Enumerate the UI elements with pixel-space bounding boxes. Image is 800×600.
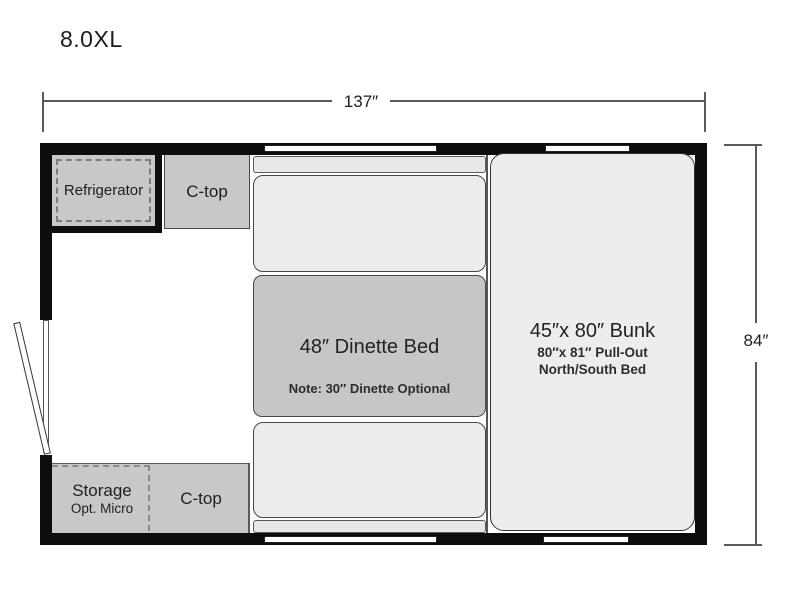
dinette-seat-bottom [253, 422, 486, 518]
dinette-bunk-divider [486, 155, 488, 533]
bunk-bed: 45″x 80″ Bunk 80″x 81″ Pull-Out North/So… [490, 153, 695, 531]
refrigerator-label: Refrigerator [64, 182, 143, 199]
window-bottom-left [264, 536, 437, 543]
width-dimension-tick-right [704, 92, 706, 132]
wall-left-upper [40, 143, 52, 320]
storage-counter-block: Storage Opt. Micro C-top [52, 463, 250, 533]
wall-right [695, 143, 707, 545]
width-dimension-line-right [390, 100, 705, 102]
dinette-backrest-top [253, 156, 486, 173]
width-dimension-label: 137″ [330, 92, 392, 112]
height-dimension-tick-top [724, 144, 762, 146]
counter-top-upper: C-top [164, 155, 250, 229]
storage-area: Storage Opt. Micro [52, 464, 152, 533]
height-dimension-tick-bottom [724, 544, 762, 546]
window-top-right [545, 145, 630, 152]
floorplan-canvas: 8.0XL 137″ 84″ Refrigerator C-top 48″ [0, 0, 800, 600]
storage-sublabel: Opt. Micro [71, 501, 133, 516]
width-dimension-line-left [43, 100, 332, 102]
height-dimension-line-bottom [755, 362, 757, 545]
dinette-bed: 48″ Dinette Bed Note: 30″ Dinette Option… [253, 275, 486, 417]
dinette-seat-top [253, 175, 486, 272]
dinette-bed-label: 48″ Dinette Bed [254, 336, 485, 359]
plan-title: 8.0XL [60, 26, 123, 53]
wall-left-lower [40, 455, 52, 545]
dinette-bed-note: Note: 30″ Dinette Optional [254, 381, 485, 396]
storage-label: Storage [72, 481, 132, 501]
width-dimension-tick-left [42, 92, 44, 132]
bunk-bed-subline1: 80″x 81″ Pull-Out [491, 345, 694, 360]
dinette-backrest-bottom [253, 520, 486, 533]
bunk-bed-subline2: North/South Bed [491, 362, 694, 377]
counter-top-lower-label: C-top [152, 464, 250, 533]
window-top-left [264, 145, 437, 152]
refrigerator: Refrigerator [52, 155, 162, 233]
bunk-bed-label: 45″x 80″ Bunk [491, 320, 694, 343]
counter-top-upper-label: C-top [186, 182, 228, 202]
window-bottom-right [543, 536, 629, 543]
height-dimension-label: 84″ [730, 331, 782, 351]
height-dimension-line-top [755, 145, 757, 323]
